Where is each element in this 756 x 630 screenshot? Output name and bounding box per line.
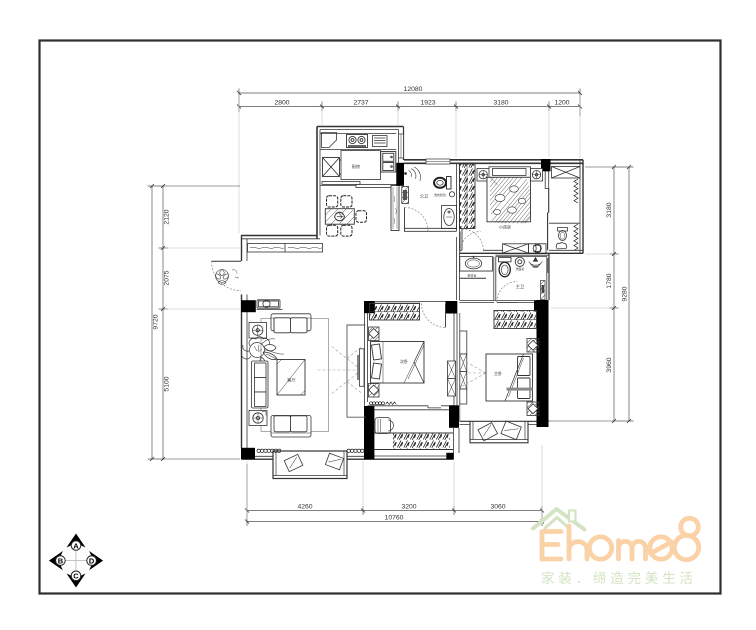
svg-text:客厅: 客厅 <box>287 377 295 384</box>
svg-text:12080: 12080 <box>404 86 423 93</box>
svg-text:3180: 3180 <box>606 202 613 217</box>
svg-text:5100: 5100 <box>164 376 171 391</box>
svg-text:主卧: 主卧 <box>494 370 502 376</box>
svg-text:梳妆台: 梳妆台 <box>467 273 476 278</box>
svg-text:3180: 3180 <box>493 100 508 107</box>
svg-text:4260: 4260 <box>297 504 312 511</box>
svg-text:2075: 2075 <box>164 270 171 285</box>
svg-text:小孩房: 小孩房 <box>499 224 511 230</box>
svg-text:1780: 1780 <box>606 273 613 288</box>
svg-text:B: B <box>58 556 64 565</box>
svg-text:次卧: 次卧 <box>400 358 408 364</box>
svg-text:3200: 3200 <box>401 504 416 511</box>
svg-text:C: C <box>73 572 79 581</box>
svg-text:厨房: 厨房 <box>352 163 360 170</box>
svg-text:1200: 1200 <box>554 100 569 107</box>
svg-text:10760: 10760 <box>385 515 404 522</box>
svg-text:公卫: 公卫 <box>420 194 428 199</box>
svg-text:D: D <box>89 556 95 565</box>
svg-text:主卫: 主卫 <box>516 283 524 289</box>
svg-text:洗面盆: 洗面盆 <box>516 267 525 271</box>
svg-text:2120: 2120 <box>164 209 171 224</box>
svg-text:2737: 2737 <box>353 100 368 107</box>
svg-text:3060: 3060 <box>490 504 505 511</box>
svg-text:9720: 9720 <box>153 314 160 329</box>
svg-text:1923: 1923 <box>420 100 435 107</box>
svg-text:2800: 2800 <box>274 100 289 107</box>
svg-text:9280: 9280 <box>622 286 629 301</box>
svg-text:A: A <box>73 541 79 550</box>
svg-text:3960: 3960 <box>606 357 613 372</box>
svg-text:洗衣机位: 洗衣机位 <box>434 192 446 197</box>
svg-text:家装．缔造完美生活: 家装．缔造完美生活 <box>541 570 697 586</box>
